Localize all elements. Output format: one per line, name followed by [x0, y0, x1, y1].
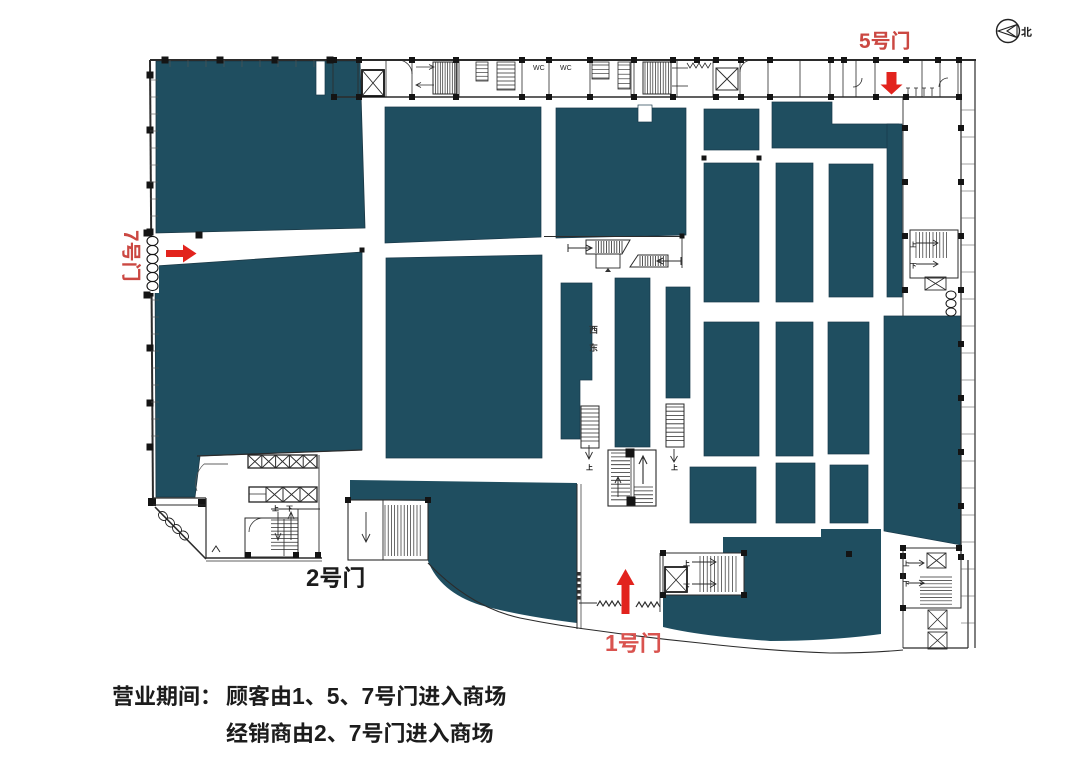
- svg-text:7: 7: [362, 683, 375, 709]
- svg-text:WC: WC: [533, 65, 545, 72]
- svg-text:7: 7: [119, 230, 142, 242]
- svg-text:1: 1: [292, 683, 305, 709]
- svg-text:1: 1: [605, 630, 618, 656]
- svg-text:WC: WC: [560, 65, 572, 72]
- svg-text:5: 5: [859, 30, 871, 53]
- svg-text:2: 2: [314, 720, 327, 746]
- svg-text:2: 2: [306, 565, 319, 592]
- svg-text:7: 7: [349, 720, 362, 746]
- svg-text:5: 5: [327, 683, 340, 709]
